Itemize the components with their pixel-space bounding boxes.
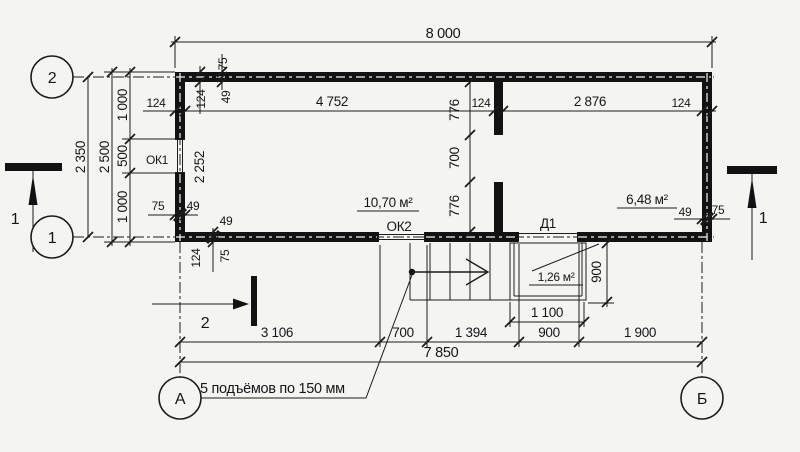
dim-walltop-75: 75: [216, 57, 230, 70]
area-porch: 1,26 м²: [538, 270, 575, 284]
dim-left-1000-top: 1 000: [115, 89, 130, 121]
dim-left-2500: 2 500: [97, 141, 112, 173]
section-label-1-right: 1: [759, 210, 768, 227]
dim-left-1000-bottom: 1 000: [115, 191, 130, 223]
floor-plan-sheet: 8 000 7 850 2 1 А Б 2 350 2 500 1 000 50…: [0, 0, 800, 452]
dim-leftwall-49: 49: [187, 199, 200, 213]
dim-overall-top: 8 000: [426, 26, 461, 42]
dim-interior-2252: 2 252: [192, 151, 207, 183]
dim-left-500: 500: [115, 145, 130, 167]
stair-direction-start-dot: [409, 269, 415, 275]
dim-left-2350: 2 350: [73, 141, 88, 173]
dim-walltop-49: 49: [219, 90, 233, 103]
dim-top-124-left: 124: [146, 96, 166, 110]
dim-partition-700: 700: [447, 147, 462, 169]
dim-bottomwall-49: 49: [220, 214, 233, 228]
dim-porch-1100: 1 100: [531, 305, 563, 320]
dim-walltop-124: 124: [194, 89, 208, 109]
floor-plan-drawing: 8 000 7 850 2 1 А Б 2 350 2 500 1 000 50…: [0, 0, 800, 452]
dim-top-124-mid: 124: [471, 96, 491, 110]
dim-bottom-700: 700: [392, 325, 414, 340]
dim-bottomwall-75: 75: [218, 249, 232, 262]
dim-partition-776-bottom: 776: [447, 195, 462, 217]
section-label-1-left: 1: [11, 211, 20, 228]
dim-partition-776-top: 776: [447, 99, 462, 121]
dim-bottom-1900: 1 900: [624, 325, 656, 340]
section-label-2: 2: [201, 315, 210, 332]
area-room-2: 6,48 м²: [626, 192, 669, 207]
dim-porch-depth-900: 900: [589, 261, 604, 283]
dim-rightwall-75: 75: [712, 203, 725, 217]
label-window-ok1: ОК1: [146, 153, 169, 167]
dim-bottom-900: 900: [538, 325, 560, 340]
axis-label-a: А: [175, 391, 186, 408]
dim-bottom-1394: 1 394: [455, 325, 488, 340]
axis-label-2: 2: [48, 70, 57, 87]
axis-label-b: Б: [697, 391, 707, 408]
dim-top-124-right: 124: [671, 96, 691, 110]
partition-lower: [494, 182, 503, 232]
dim-bottom-3106: 3 106: [261, 325, 293, 340]
dim-leftwall-75: 75: [152, 199, 165, 213]
dim-top-4752: 4 752: [316, 94, 348, 109]
stair-note: 5 подъёмов по 150 мм: [200, 381, 345, 397]
dim-rightwall-49: 49: [679, 205, 692, 219]
label-window-ok2: ОК2: [387, 219, 412, 234]
area-room-1: 10,70 м²: [364, 195, 414, 210]
dim-overall-bottom: 7 850: [424, 345, 459, 361]
axis-label-1: 1: [48, 230, 57, 247]
dim-bottomwall-124: 124: [189, 248, 203, 268]
dim-top-2876: 2 876: [574, 94, 606, 109]
label-door-d1: Д1: [540, 216, 556, 231]
